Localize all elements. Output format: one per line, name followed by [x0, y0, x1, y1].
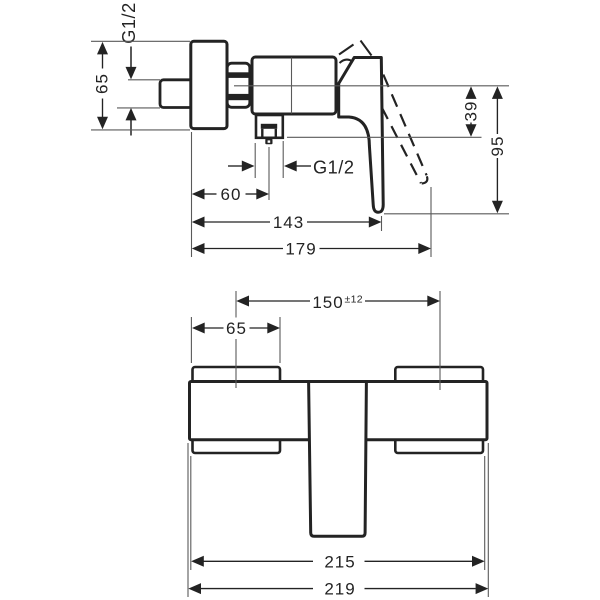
svg-text:39: 39: [461, 101, 480, 122]
svg-text:65: 65: [93, 73, 112, 94]
svg-text:179: 179: [285, 240, 316, 259]
svg-text:219: 219: [324, 580, 355, 599]
svg-text:G1/2: G1/2: [119, 2, 139, 43]
svg-text:±12: ±12: [345, 293, 363, 305]
svg-text:95: 95: [488, 136, 507, 157]
svg-text:150: 150: [312, 293, 343, 312]
svg-text:65: 65: [226, 319, 247, 338]
svg-text:60: 60: [221, 185, 242, 204]
svg-text:215: 215: [324, 552, 355, 571]
svg-text:143: 143: [273, 213, 304, 232]
svg-text:G1/2: G1/2: [313, 158, 354, 178]
